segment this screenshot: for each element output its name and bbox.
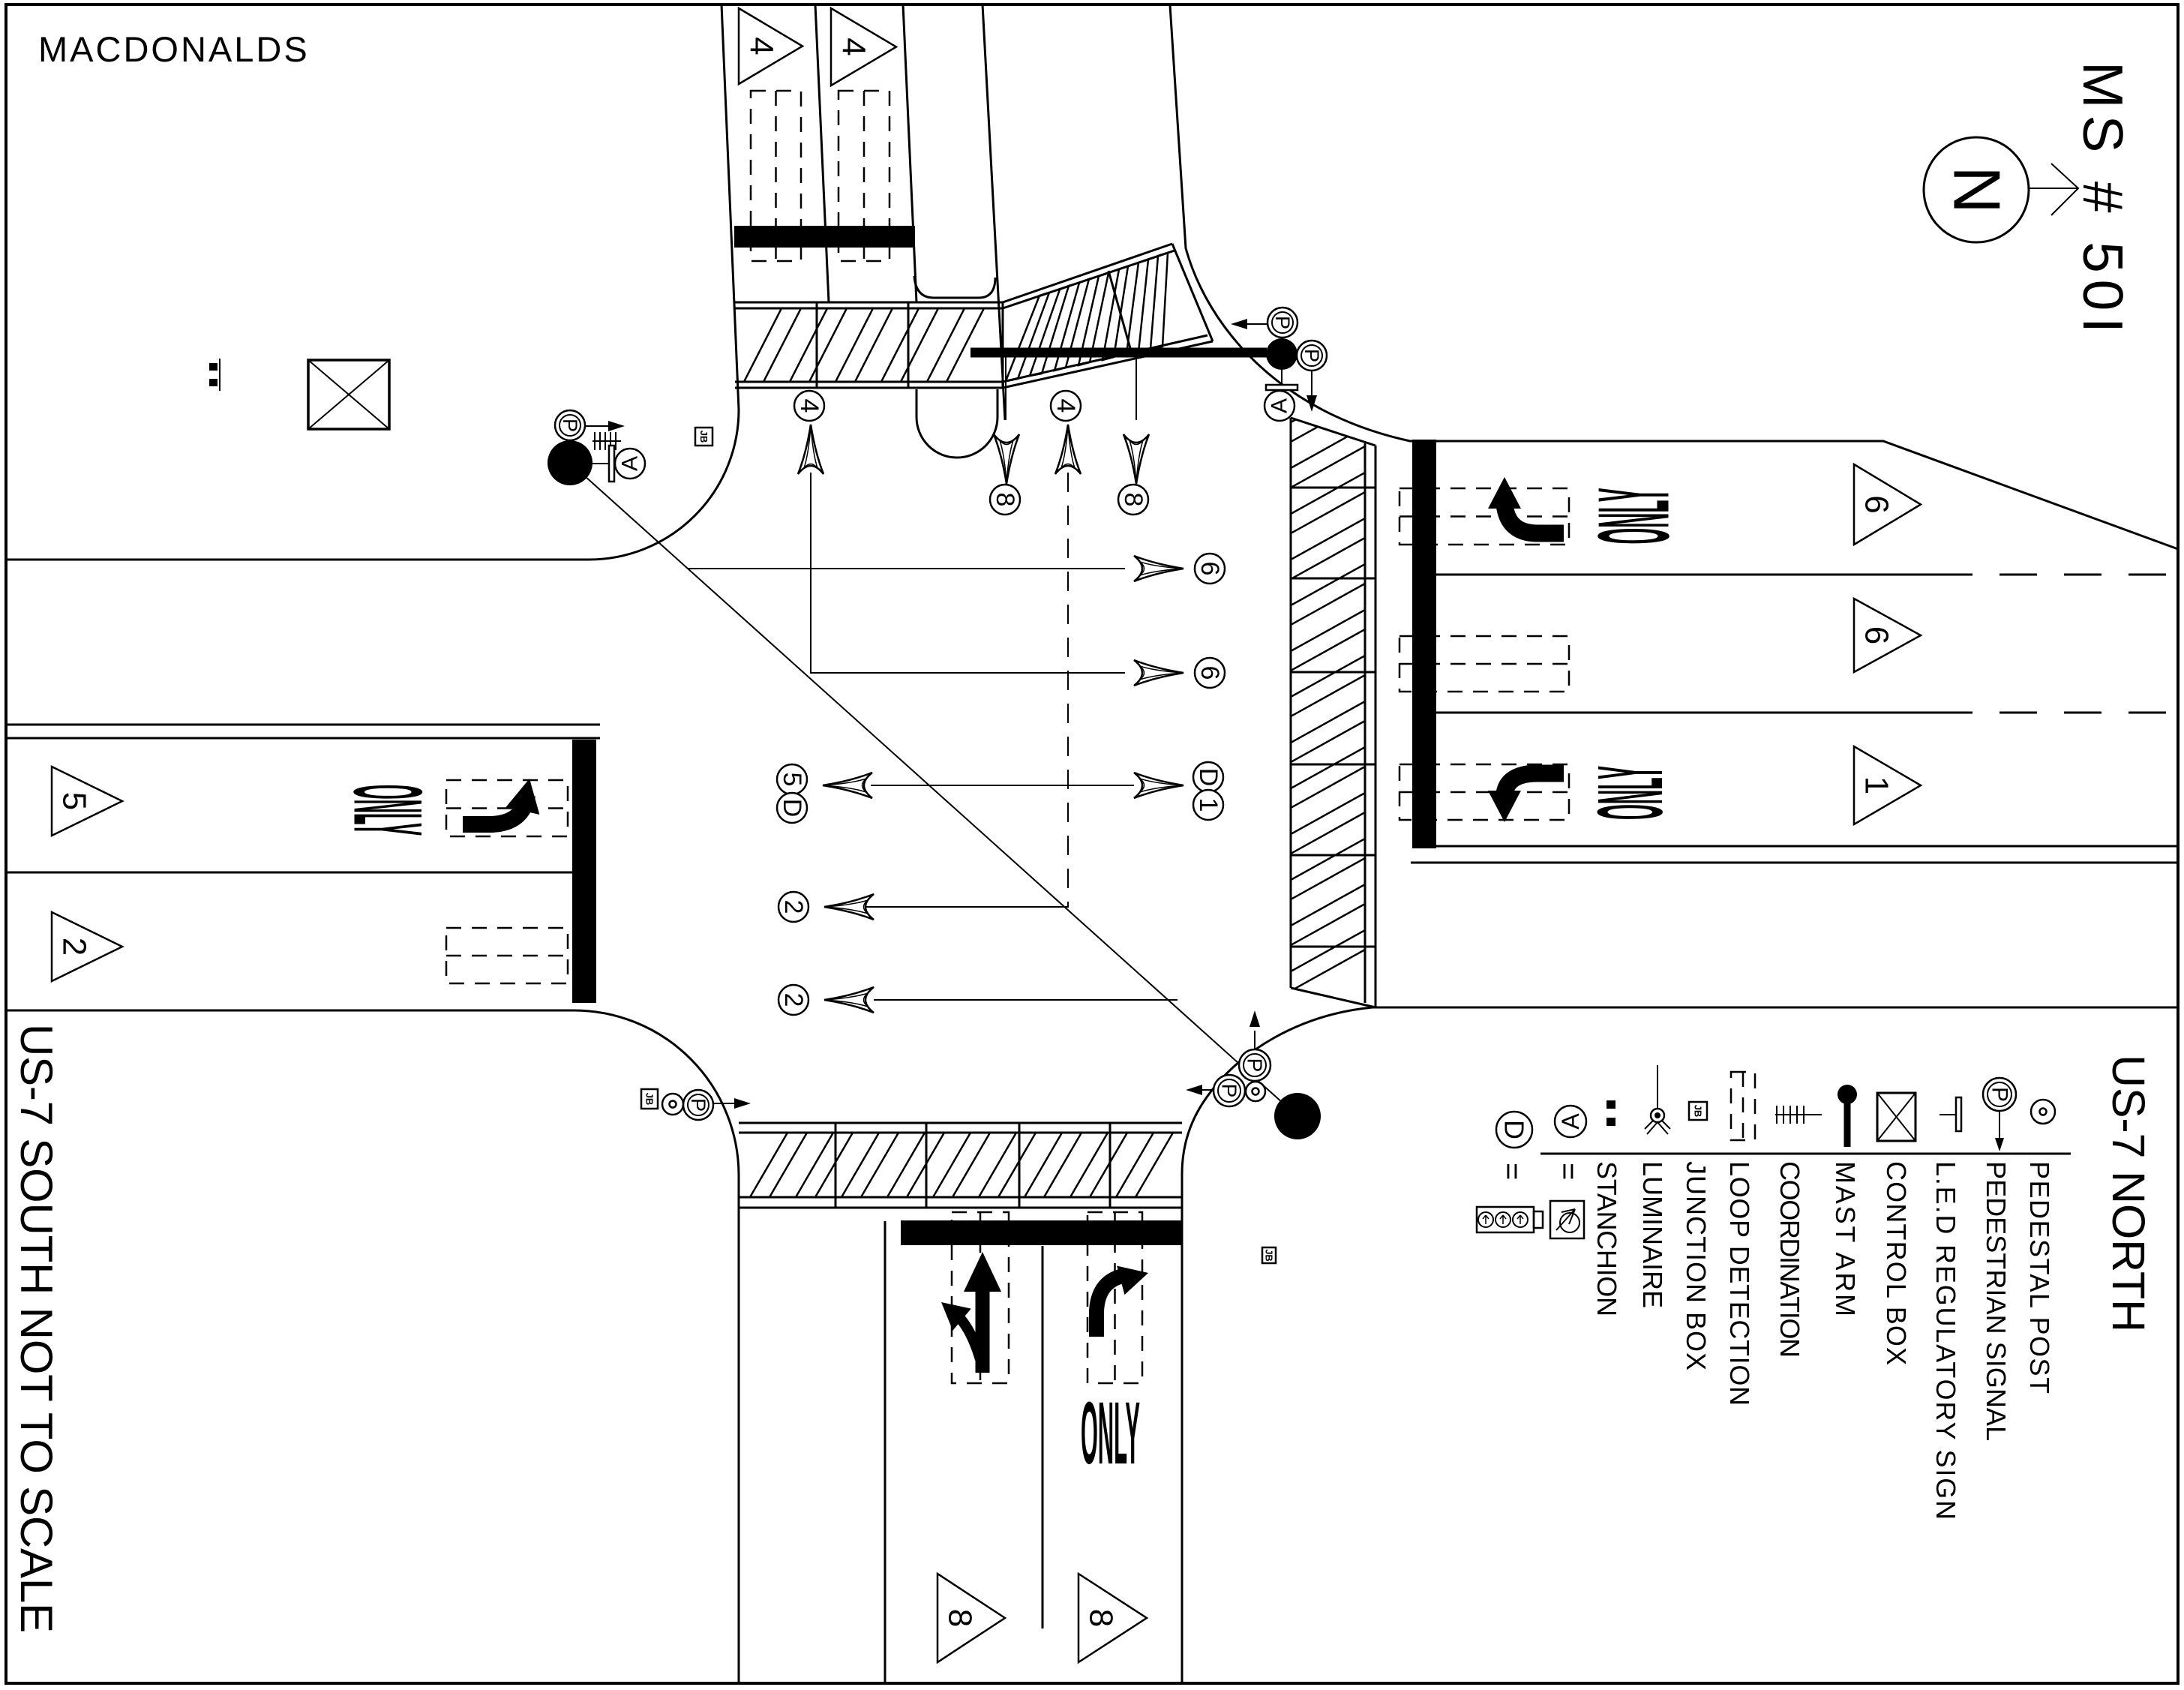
svg-text:4: 4 [743, 37, 780, 55]
svg-text:6: 6 [1858, 495, 1895, 513]
svg-text:P: P [1987, 1087, 2012, 1102]
svg-text:LOOP DETECTION: LOOP DETECTION [1724, 1161, 1755, 1406]
svg-text:6: 6 [1195, 562, 1224, 576]
svg-text:ONLY: ONLY [334, 785, 443, 836]
svg-text:US-7 SOUTH NOT TO SCALE: US-7 SOUTH NOT TO SCALE [11, 1024, 61, 1633]
svg-text:1: 1 [1194, 798, 1222, 812]
svg-text:2: 2 [779, 900, 808, 914]
svg-text:5: 5 [778, 773, 806, 787]
svg-text:L.E.D REGULATORY SIGN: L.E.D REGULATORY SIGN [1930, 1161, 1961, 1520]
svg-text:5: 5 [56, 792, 93, 810]
svg-text:LUMINAIRE: LUMINAIRE [1637, 1161, 1668, 1308]
svg-text:A: A [618, 456, 643, 471]
svg-text:=: = [1552, 1163, 1585, 1180]
svg-text:P: P [1243, 1058, 1267, 1073]
svg-text:JB: JB [644, 1093, 655, 1106]
svg-text:2: 2 [56, 938, 93, 956]
svg-text:COORDINATION: COORDINATION [1774, 1161, 1805, 1358]
svg-text:N: N [1940, 166, 2014, 214]
svg-text:STANCHION: STANCHION [1591, 1161, 1622, 1316]
svg-text:4: 4 [835, 38, 872, 56]
svg-text:MACDONALDS: MACDONALDS [38, 29, 310, 69]
svg-text:CONTROL BOX: CONTROL BOX [1881, 1161, 1912, 1365]
svg-text:P: P [1271, 316, 1294, 329]
svg-text:JB: JB [1693, 1105, 1704, 1118]
svg-text:8: 8 [991, 493, 1019, 507]
svg-text:4: 4 [1051, 399, 1080, 413]
svg-text:JUNCTION BOX: JUNCTION BOX [1681, 1161, 1711, 1370]
svg-text:6: 6 [1195, 666, 1224, 680]
svg-text:JB: JB [1264, 1249, 1275, 1262]
svg-text:D: D [1499, 1120, 1530, 1139]
svg-text:D: D [778, 799, 806, 818]
svg-text:JB: JB [698, 431, 709, 443]
svg-text:P: P [1218, 1084, 1241, 1098]
svg-text:=: = [1495, 1163, 1528, 1180]
svg-text:1: 1 [1858, 776, 1895, 794]
svg-text:US-7 NORTH: US-7 NORTH [2103, 1055, 2154, 1332]
svg-text:8: 8 [942, 1609, 979, 1627]
svg-text:A: A [1557, 1113, 1584, 1130]
svg-text:PEDESTRIAN SIGNAL: PEDESTRIAN SIGNAL [1981, 1161, 2011, 1441]
svg-text:ONLY: ONLY [1577, 488, 1690, 545]
svg-text:6: 6 [1858, 626, 1895, 644]
svg-text:ONLY: ONLY [1081, 1384, 1140, 1483]
svg-text:2: 2 [779, 993, 808, 1007]
svg-text:ONLY: ONLY [1579, 766, 1682, 820]
svg-text:PEDESTAL POST: PEDESTAL POST [2024, 1161, 2055, 1394]
svg-text:P: P [1300, 349, 1323, 362]
svg-text:MS # 50I: MS # 50I [2071, 62, 2134, 333]
svg-text:P: P [687, 1098, 709, 1112]
svg-text:4: 4 [795, 399, 823, 413]
svg-text:8: 8 [1083, 1609, 1120, 1627]
svg-text:A: A [1267, 398, 1292, 413]
svg-text:P: P [559, 419, 581, 432]
svg-text:8: 8 [1119, 493, 1147, 507]
svg-text:D: D [1194, 768, 1222, 787]
